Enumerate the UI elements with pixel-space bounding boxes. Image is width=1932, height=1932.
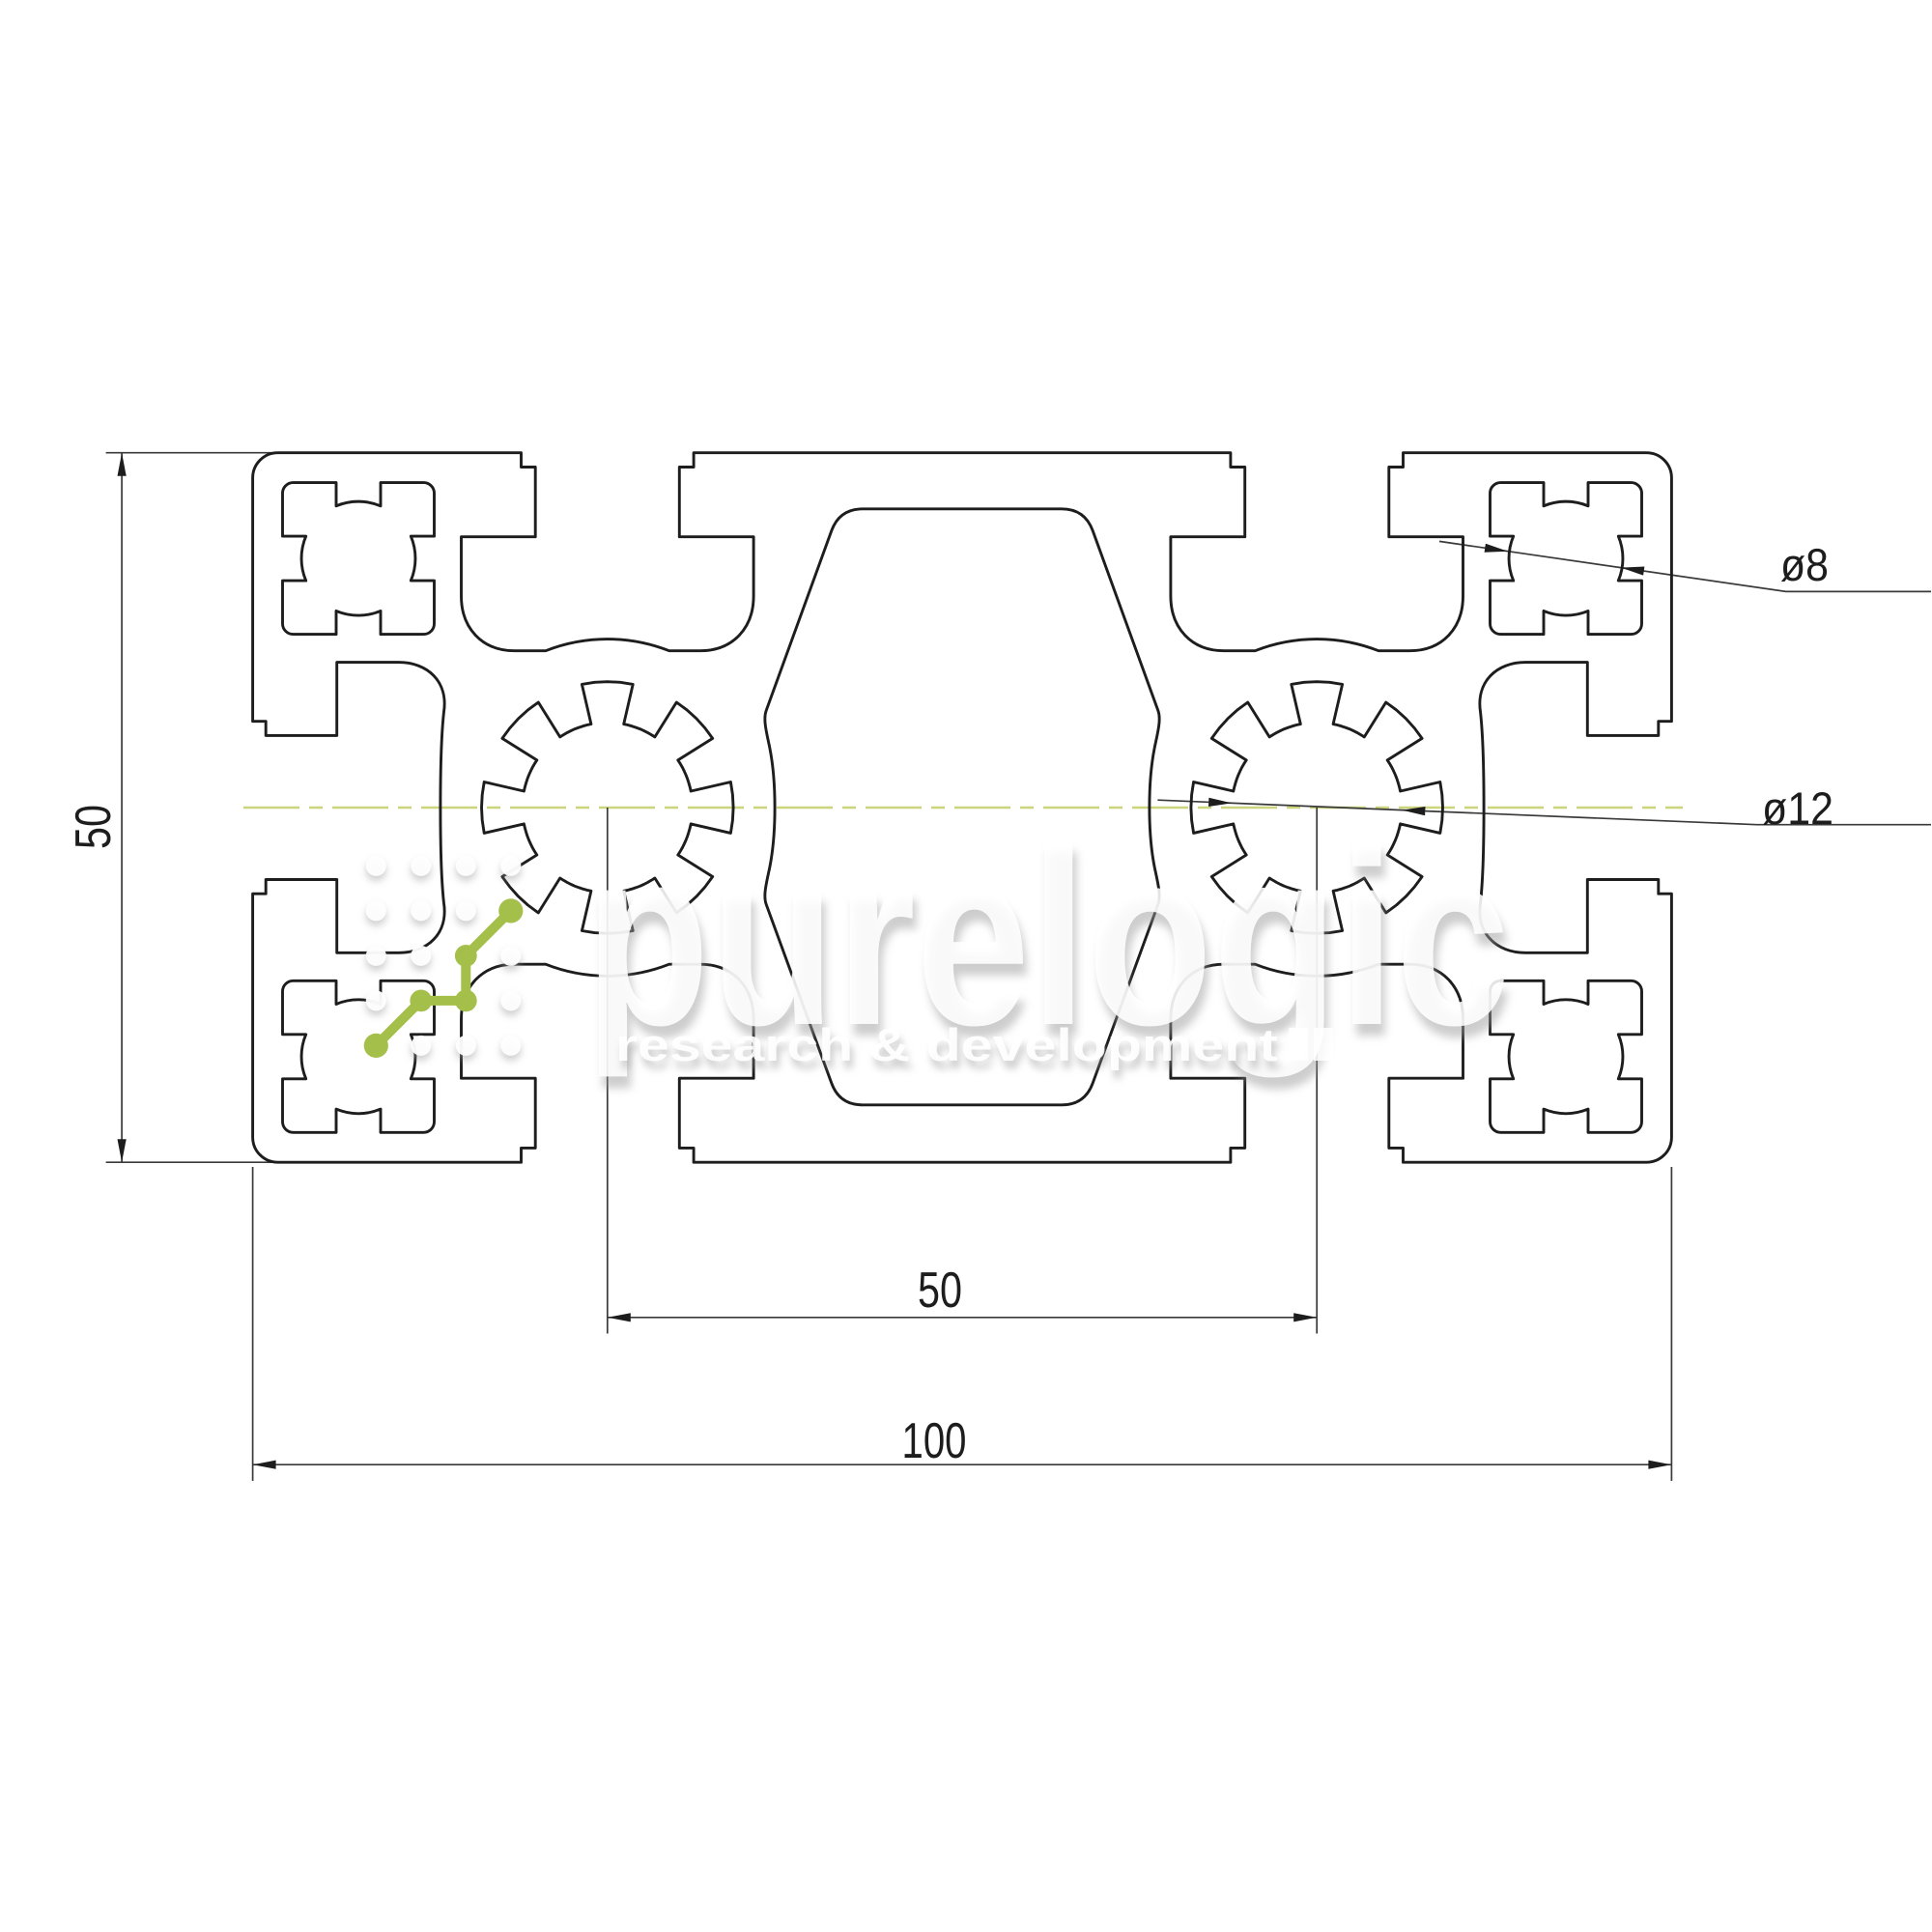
svg-text:50: 50: [66, 805, 122, 849]
svg-text:100: 100: [902, 1413, 967, 1469]
svg-text:50: 50: [918, 1263, 962, 1319]
svg-text:research & development: research & development: [615, 1019, 1278, 1070]
svg-text:ø12: ø12: [1762, 782, 1833, 834]
svg-text:ø8: ø8: [1780, 539, 1829, 590]
